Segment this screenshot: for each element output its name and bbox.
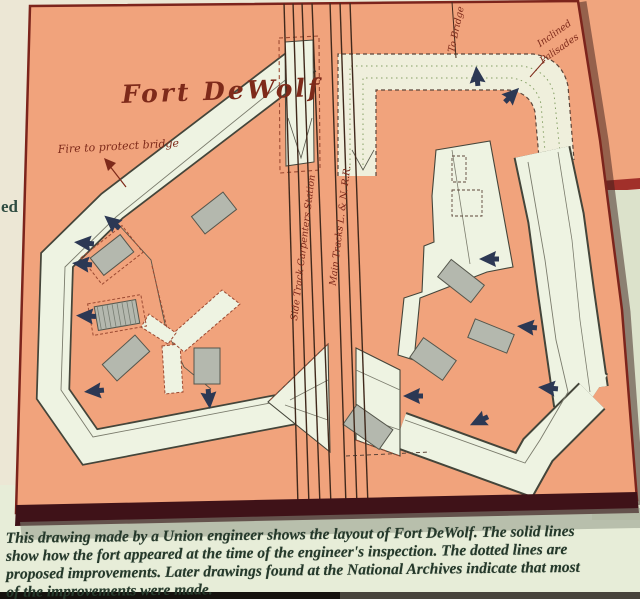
traverse-stem <box>162 344 183 394</box>
marker-photo: Fort DeWolf Fire to protect bridge To Br… <box>0 0 640 599</box>
caption-text: This drawing made by a Union engineer sh… <box>6 522 637 599</box>
edge-text-fragment: ed <box>1 197 18 217</box>
fort-dewolf-map-drawing: Fort DeWolf Fire to protect bridge To Br… <box>0 0 640 599</box>
building <box>194 348 220 384</box>
